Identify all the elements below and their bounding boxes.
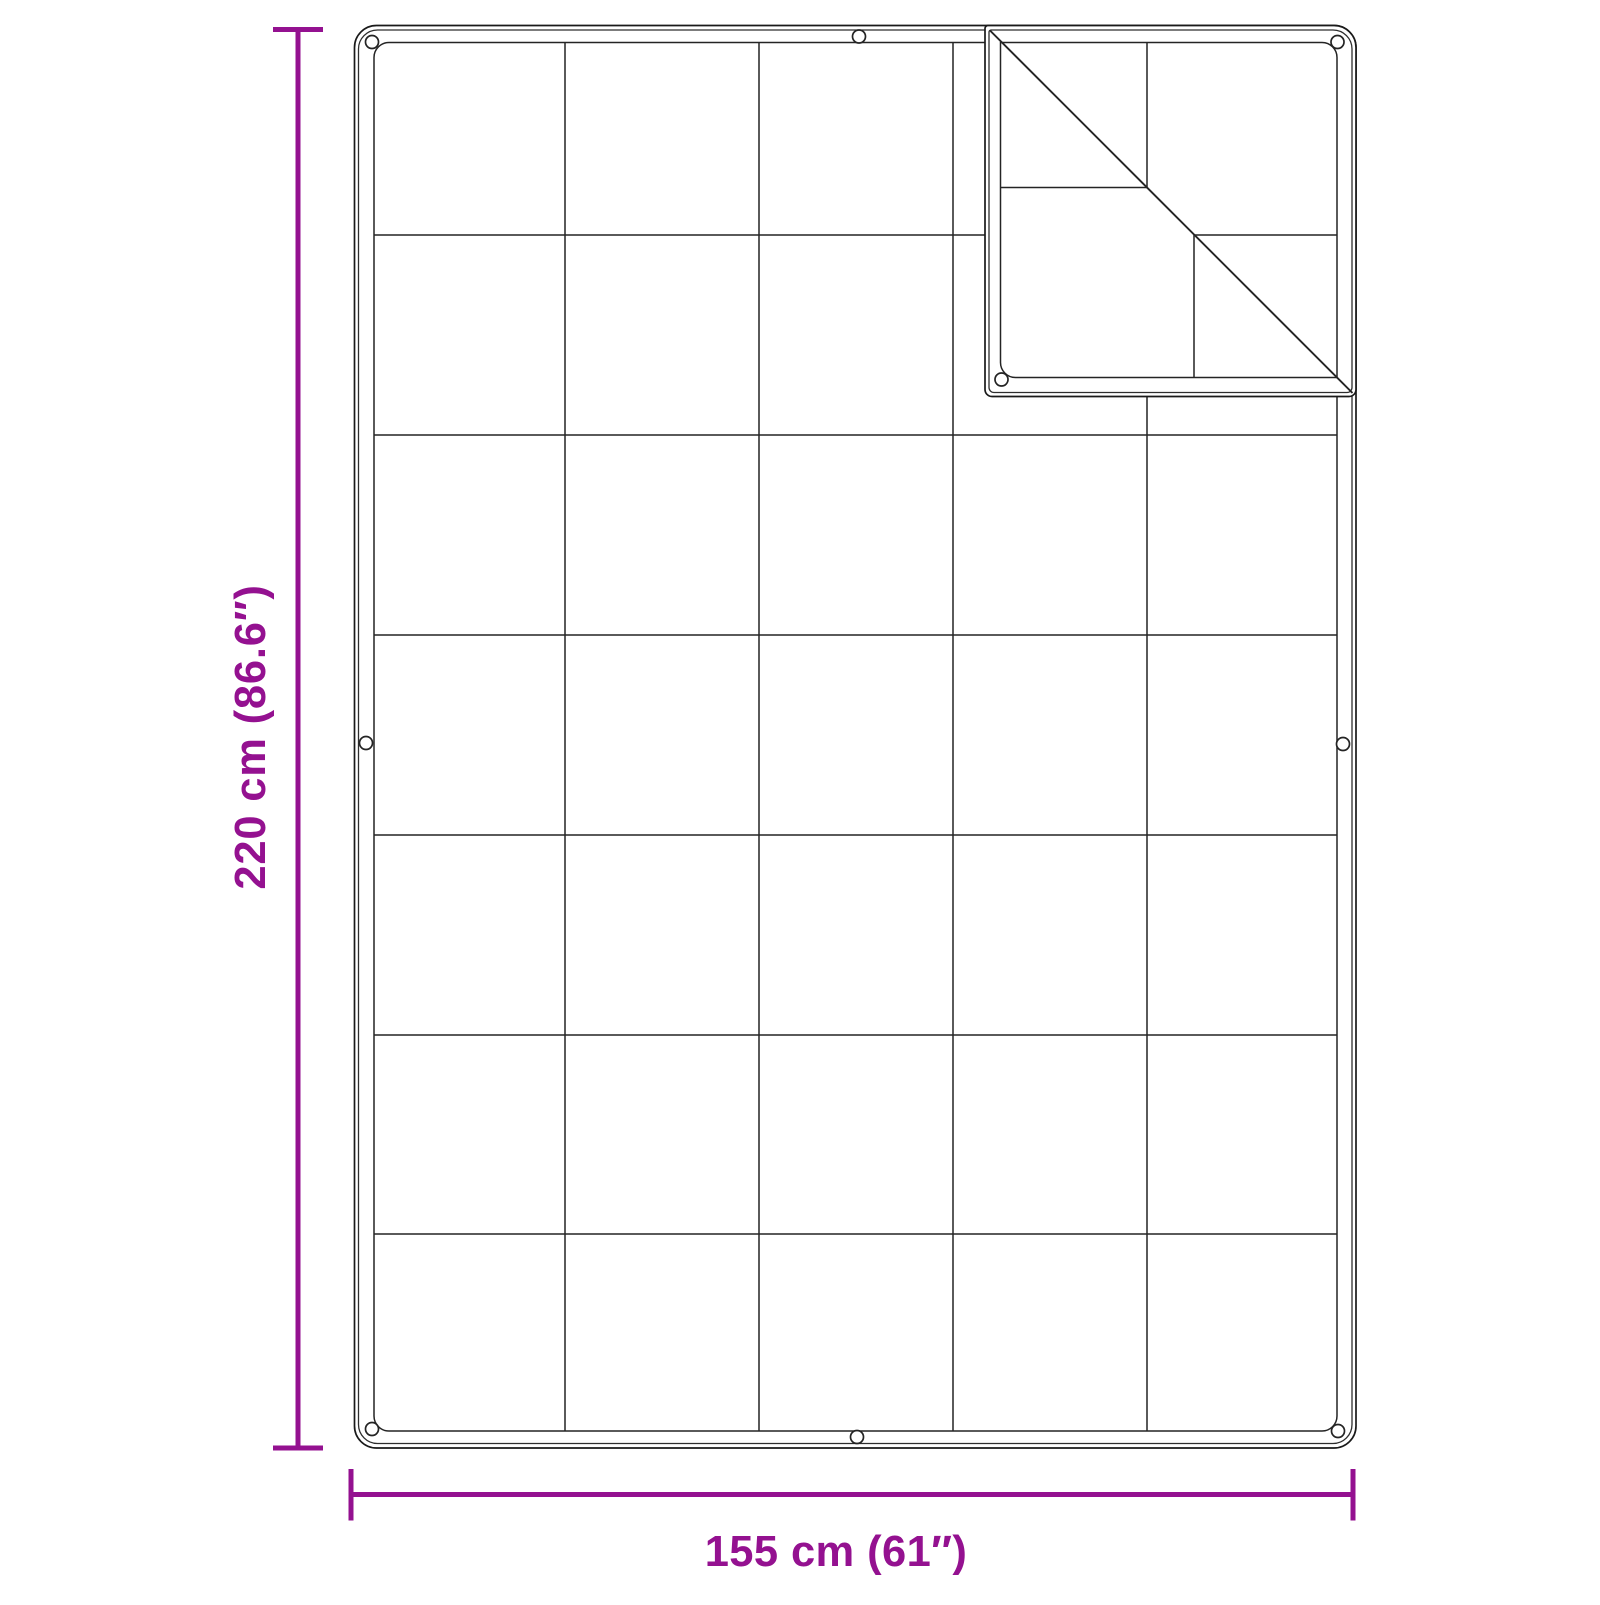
svg-text:155 cm (61″): 155 cm (61″) xyxy=(705,1528,968,1576)
svg-text:220 cm (86.6″): 220 cm (86.6″) xyxy=(227,584,275,889)
